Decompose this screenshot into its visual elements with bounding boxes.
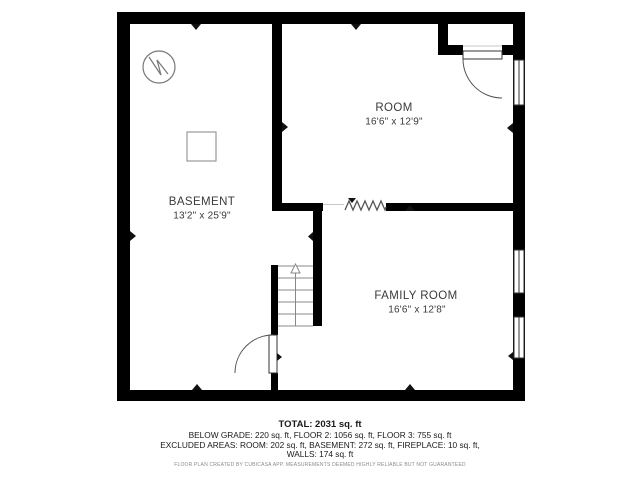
wall-basement-room-divider [272,24,282,205]
electrical-panel-symbol [143,51,175,83]
wall-below-basement-door [271,373,278,390]
family-room-name: FAMILY ROOM [374,290,457,302]
closet-door-leaf [463,51,502,59]
basement-room-dimensions: 13'2" x 25'9" [173,211,230,222]
tick-right-wall-room [507,123,513,133]
basement-door-arc [235,335,273,373]
column-square-symbol [187,132,216,161]
door-swing-basement [235,335,277,373]
tick-top-basement [191,24,201,30]
window-room-right [514,60,524,105]
tick-left-wall [130,231,136,241]
tick-window-lower [508,352,513,360]
room-name: ROOM [375,102,412,114]
wall-closet-bottom-left [438,45,463,55]
stairs-up [278,264,313,326]
wall-left [117,12,130,401]
total-area-text: TOTAL: 2031 sq. ft [0,419,640,430]
wall-top [117,12,525,24]
basement-room-name: BASEMENT [169,196,235,208]
wall-divider-stub [272,203,323,211]
fireplace-zigzag [345,201,386,210]
floor-plan-page: BASEMENT 13'2" x 25'9" ROOM 16'6" x 12'9… [0,0,640,480]
basement-door-leaf [269,335,277,373]
wall-bottom [117,390,525,401]
closet-door-arc [463,59,502,98]
disclaimer-text: FLOOR PLAN CREATED BY CUBICASA APP. MEAS… [0,462,640,468]
wall-closet-bottom-right [502,45,513,55]
tick-basement-door [277,353,282,361]
tick-top-room [351,24,361,30]
tick-divider-wall [282,122,288,132]
door-swing-closet [463,51,502,98]
stairs-up-arrow [291,264,300,273]
wall-fireplace [386,203,513,211]
family-room-dimensions: 16'6" x 12'8" [388,305,445,316]
lightning-zigzag-icon [149,57,168,75]
tick-bottom-basement [192,384,202,390]
wall-stairs-right [313,211,322,326]
tick-stairs-wall [308,232,313,241]
room-dimensions: 16'6" x 12'9" [365,117,422,128]
area-breakdown-line-1: BELOW GRADE: 220 sq. ft, FLOOR 2: 1056 s… [0,430,640,440]
floor-plan-drawing [0,0,640,480]
tick-bottom-family-room [405,384,415,390]
wall-stairs-left [271,265,278,335]
window-family-room-upper [514,250,524,293]
window-family-room-lower [514,317,524,358]
area-breakdown-line-3: WALLS: 174 sq. ft [0,449,640,459]
